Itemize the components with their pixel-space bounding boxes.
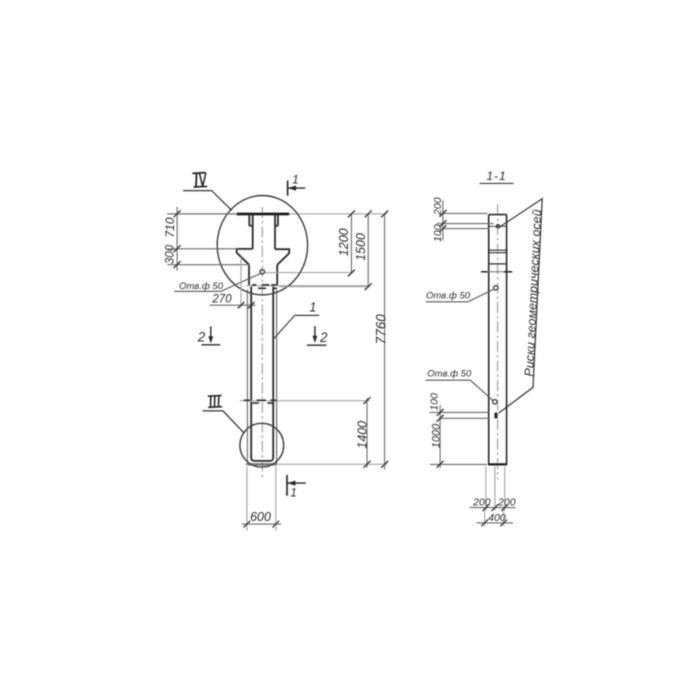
- svg-text:Риски геометрических осей: Риски геометрических осей: [522, 209, 544, 377]
- svg-text:2: 2: [319, 330, 328, 345]
- svg-text:1: 1: [309, 301, 316, 315]
- svg-text:Отв.ф 50: Отв.ф 50: [426, 291, 471, 302]
- svg-text:200: 200: [497, 497, 516, 509]
- svg-text:Отв.ф 50: Отв.ф 50: [427, 369, 472, 380]
- svg-text:Отв.ф 50: Отв.ф 50: [179, 281, 224, 292]
- svg-text:1000: 1000: [430, 423, 442, 448]
- svg-text:100: 100: [429, 393, 441, 411]
- svg-text:200: 200: [432, 197, 444, 216]
- svg-text:1400: 1400: [356, 421, 370, 449]
- svg-text:200: 200: [472, 497, 491, 509]
- svg-text:300: 300: [165, 244, 177, 264]
- svg-text:600: 600: [250, 510, 271, 524]
- svg-text:400: 400: [488, 512, 506, 524]
- svg-text:1: 1: [292, 175, 298, 187]
- svg-text:7760: 7760: [374, 314, 389, 345]
- svg-text:270: 270: [211, 293, 232, 305]
- svg-text:1-1: 1-1: [486, 169, 506, 183]
- svg-text:1200: 1200: [337, 228, 351, 256]
- svg-text:710: 710: [163, 217, 177, 237]
- svg-text:1: 1: [290, 488, 296, 500]
- svg-text:100: 100: [432, 224, 444, 242]
- svg-text:2: 2: [197, 330, 206, 345]
- svg-text:1500: 1500: [354, 233, 368, 261]
